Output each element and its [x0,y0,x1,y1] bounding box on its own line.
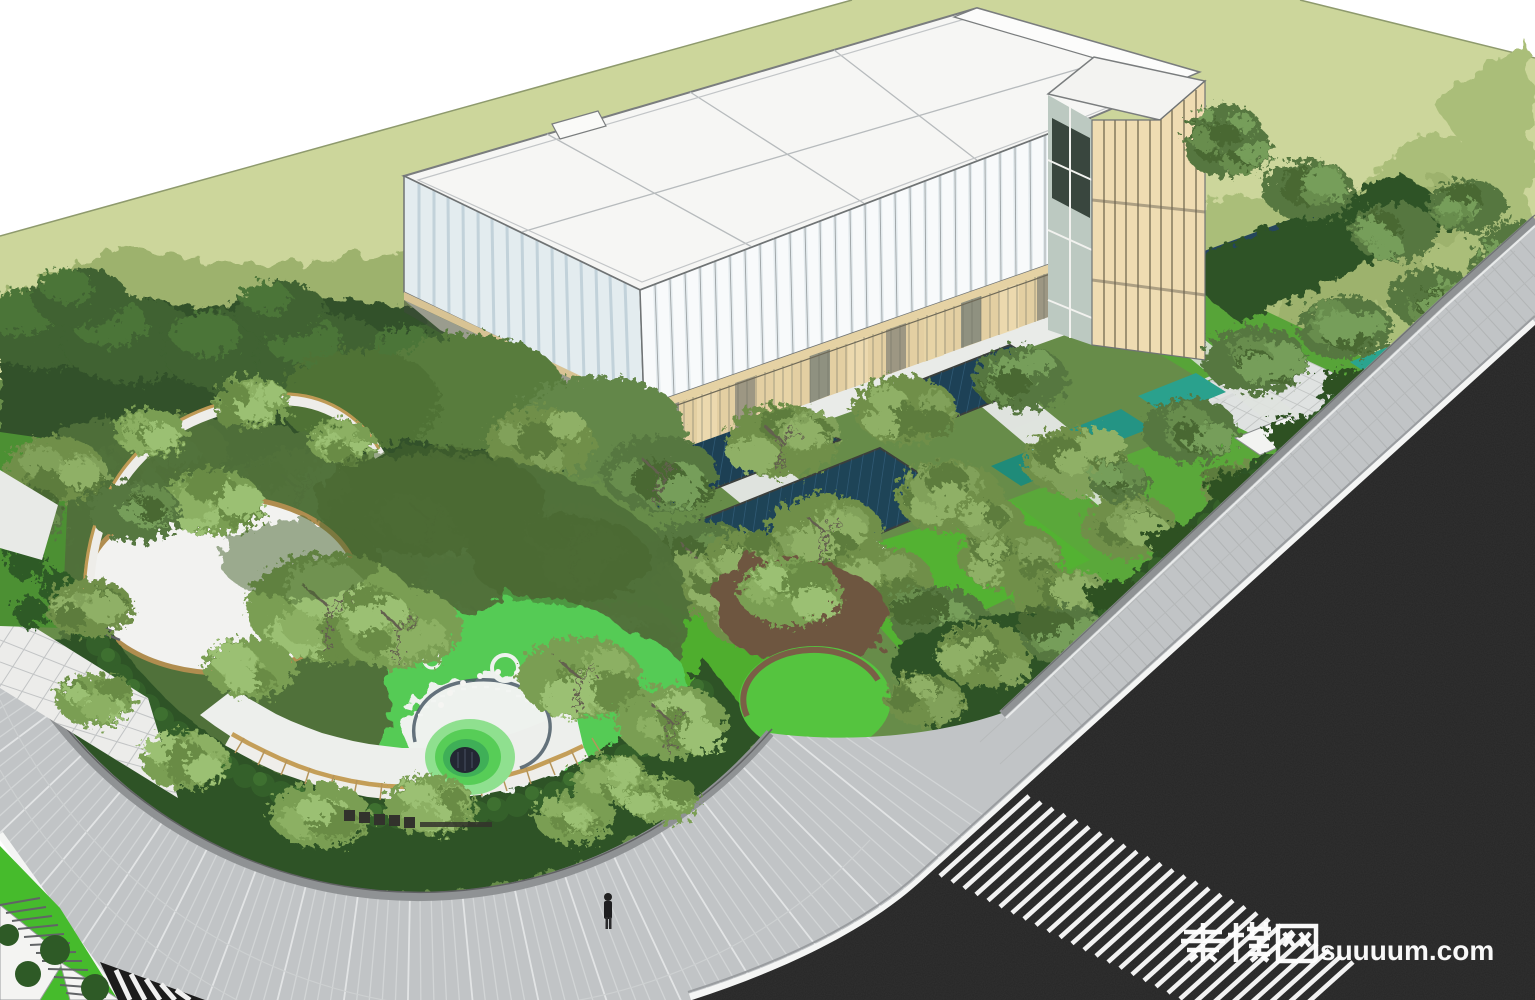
svg-text:suuuum.com: suuuum.com [1320,935,1494,966]
